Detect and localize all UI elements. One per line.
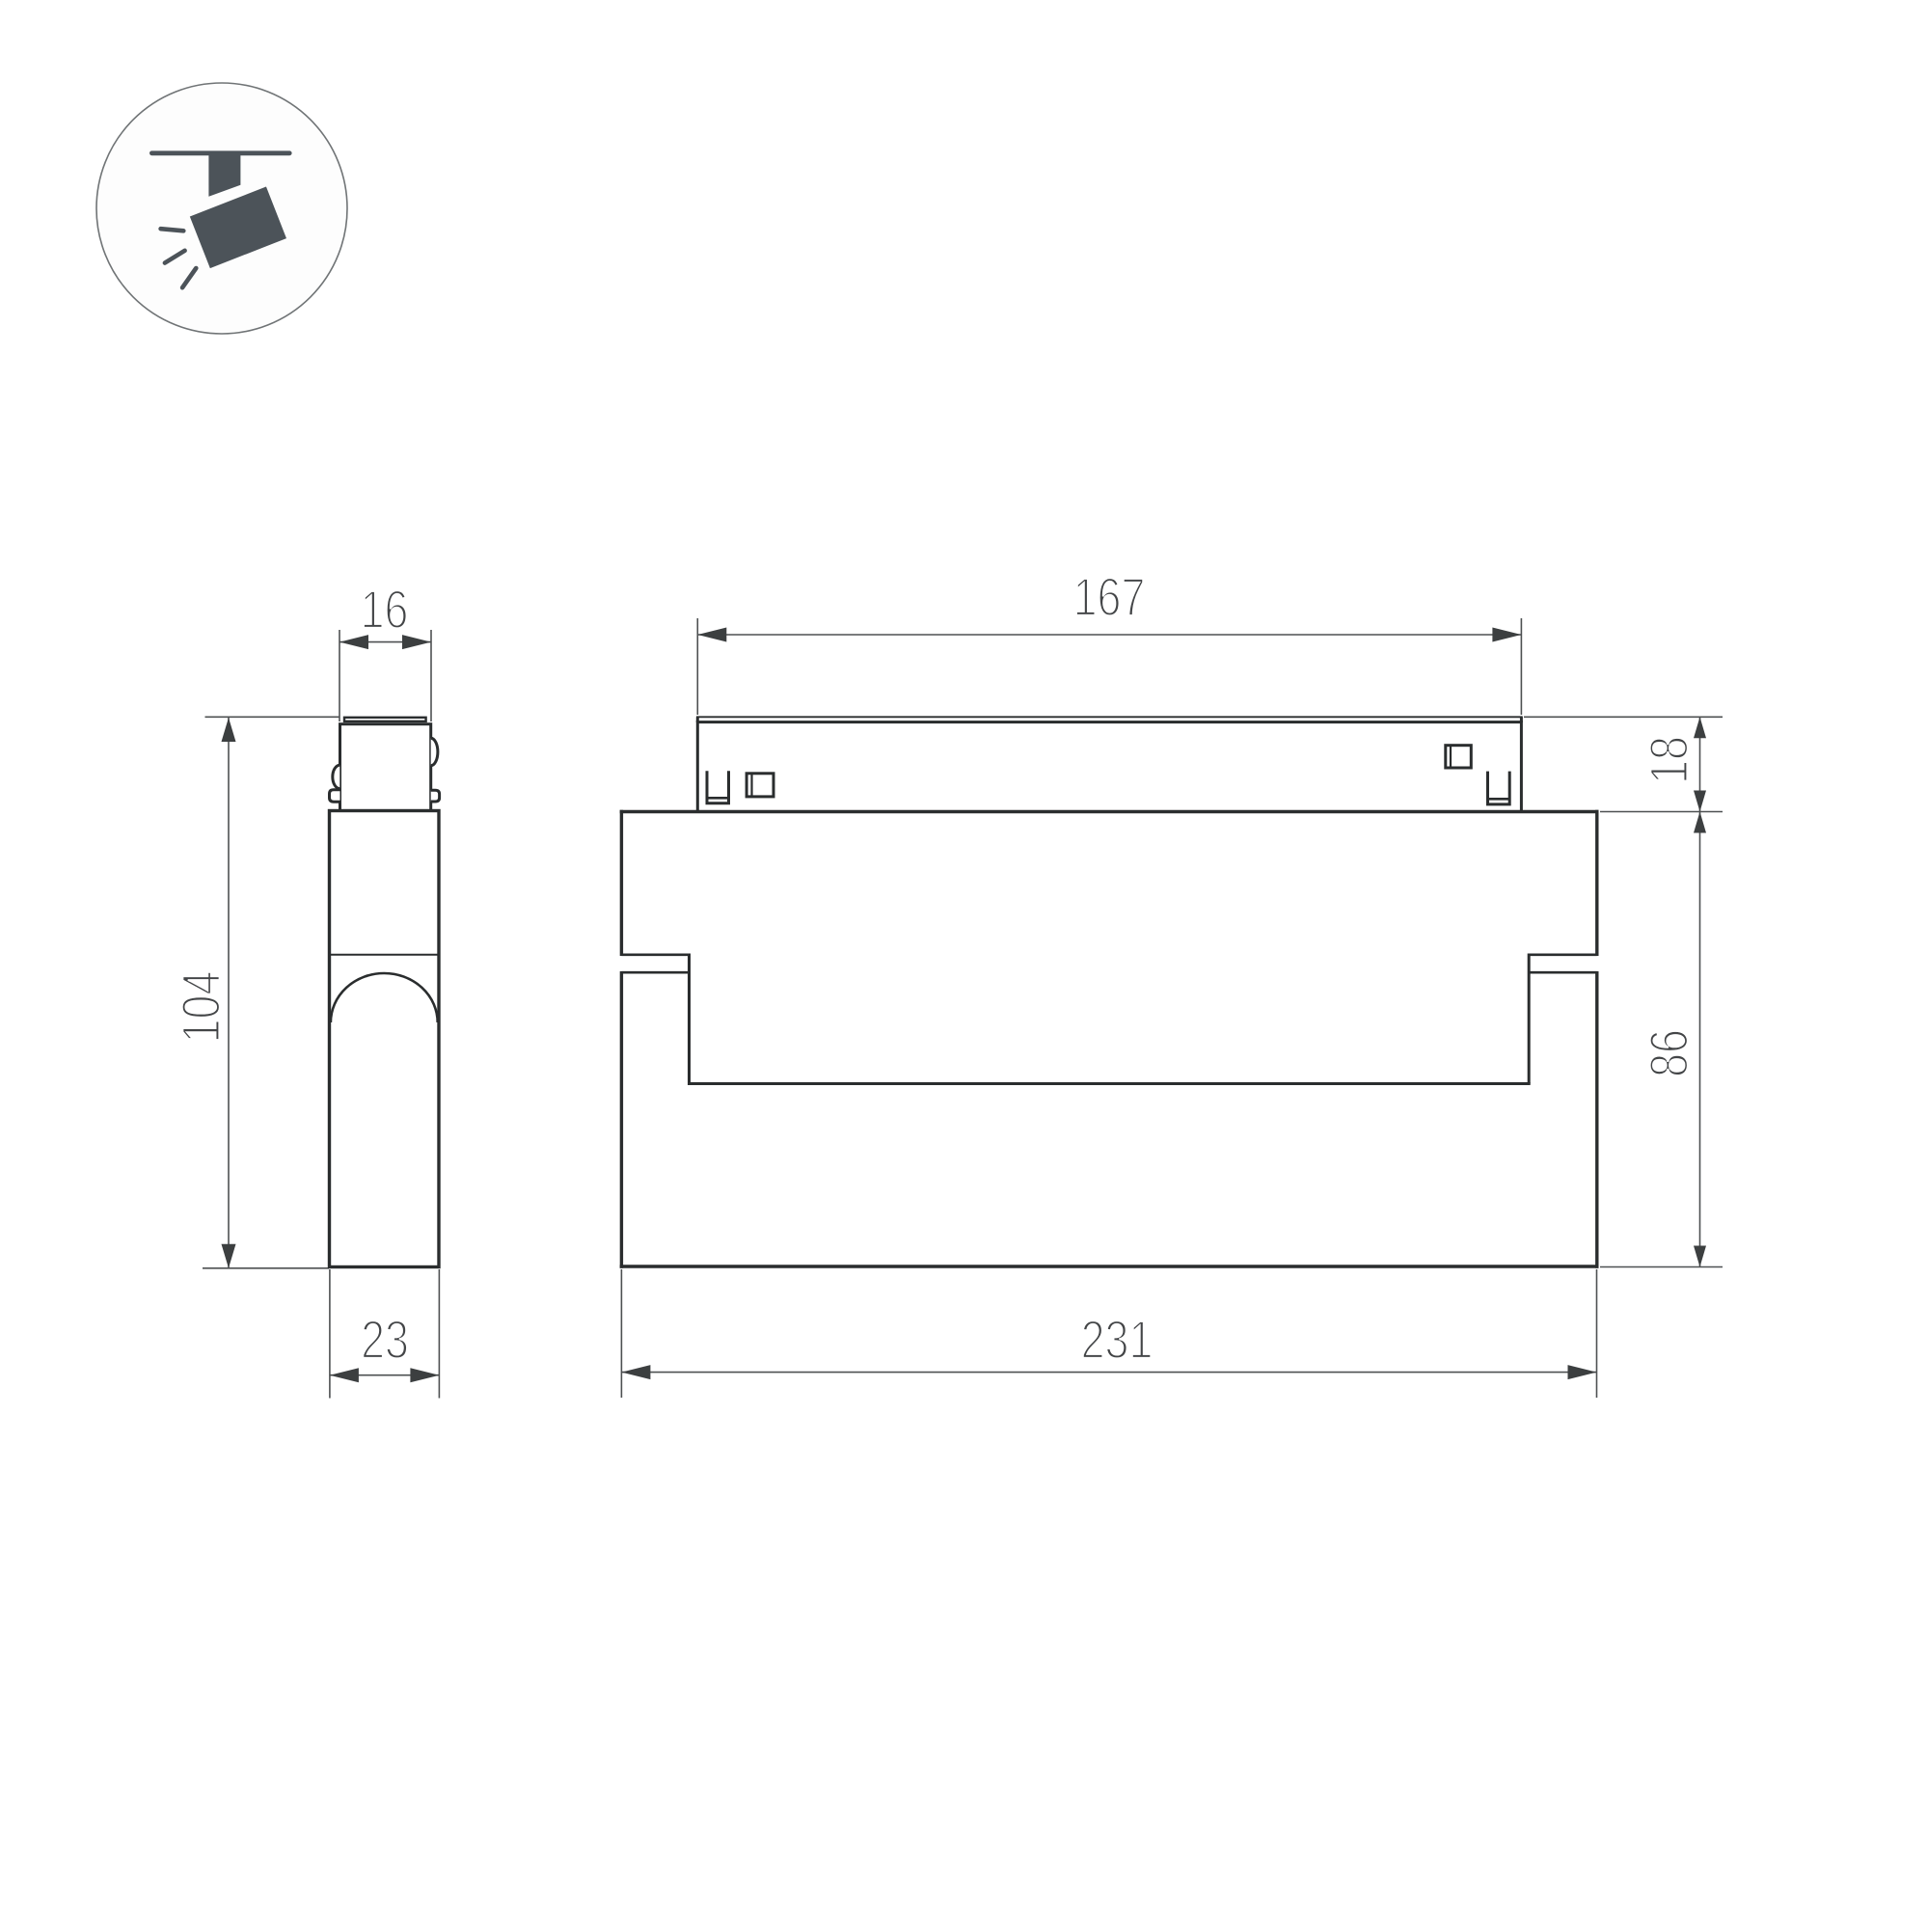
svg-text:86: 86 <box>1639 1029 1699 1077</box>
svg-text:23: 23 <box>361 1309 409 1370</box>
svg-text:16: 16 <box>361 579 409 639</box>
svg-text:231: 231 <box>1081 1309 1153 1370</box>
svg-text:104: 104 <box>171 971 231 1044</box>
svg-text:18: 18 <box>1639 736 1699 784</box>
svg-text:167: 167 <box>1073 566 1146 627</box>
